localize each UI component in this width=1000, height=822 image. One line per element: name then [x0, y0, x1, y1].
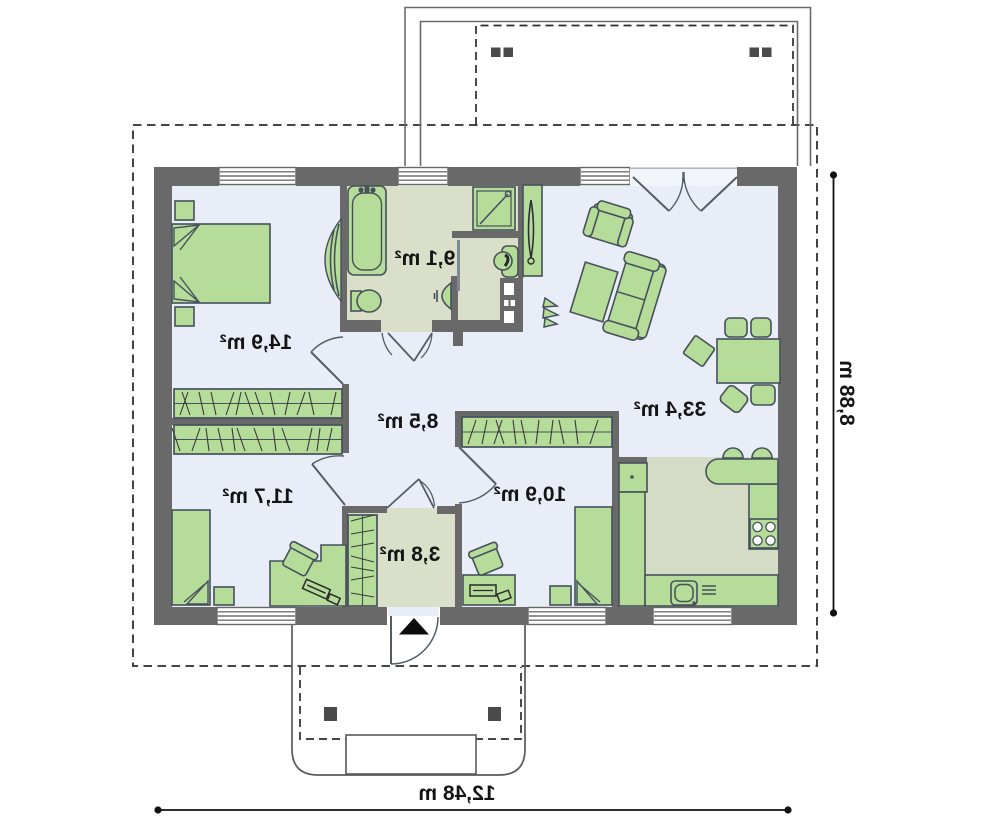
svg-text:3,8 m²: 3,8 m² — [380, 543, 441, 566]
svg-text:33,4 m²: 33,4 m² — [634, 398, 706, 421]
svg-text:9,1 m²: 9,1 m² — [395, 247, 456, 270]
svg-text:11,7 m²: 11,7 m² — [222, 485, 293, 508]
svg-text:10,9 m²: 10,9 m² — [494, 483, 566, 506]
svg-text:8,5 m²: 8,5 m² — [378, 410, 439, 433]
svg-text:12,48 m: 12,48 m — [418, 782, 495, 805]
svg-text:8,88 m: 8,88 m — [835, 360, 858, 425]
svg-text:14,9 m²: 14,9 m² — [220, 331, 292, 354]
